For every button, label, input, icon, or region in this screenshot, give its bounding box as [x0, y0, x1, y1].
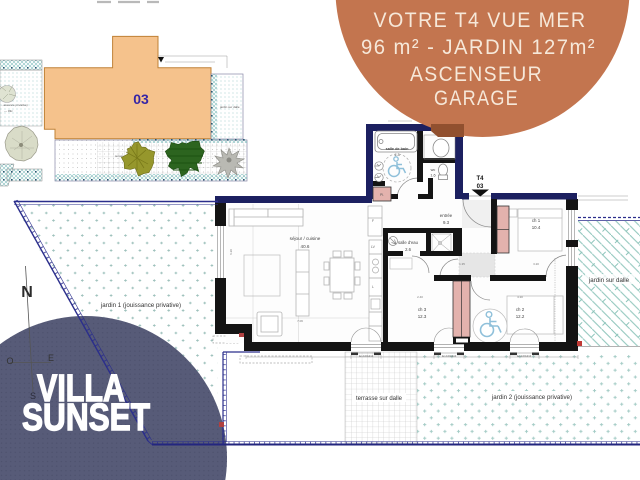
- svg-text:jardin sur dalle: jardin sur dalle: [219, 105, 240, 109]
- svg-text:fen 100x210: fen 100x210: [359, 354, 374, 358]
- svg-text:2.6: 2.6: [405, 247, 411, 252]
- svg-text:3.20: 3.20: [533, 262, 539, 266]
- svg-text:O: O: [6, 356, 13, 366]
- svg-text:12.2: 12.2: [516, 314, 525, 319]
- svg-text:...assance privative): ...assance privative): [1, 103, 28, 107]
- svg-text:40.6: 40.6: [301, 244, 310, 249]
- svg-text:SUNSET: SUNSET: [22, 397, 150, 439]
- svg-text:Pl.: Pl.: [380, 193, 384, 197]
- svg-text:ch 1: ch 1: [532, 218, 541, 223]
- svg-text:7.06: 7.06: [297, 319, 303, 323]
- svg-text:ASCENSEUR: ASCENSEUR: [410, 63, 543, 86]
- svg-text:ch 3: ch 3: [418, 307, 427, 312]
- svg-text:salle de bain: salle de bain: [386, 147, 409, 151]
- svg-text:1.6: 1.6: [430, 174, 435, 178]
- svg-text:N: N: [21, 284, 33, 301]
- svg-text:jardin 2 (jouissance privative: jardin 2 (jouissance privative): [491, 394, 572, 401]
- svg-text:jardin 1 (jouissance privative: jardin 1 (jouissance privative): [100, 302, 181, 309]
- svg-text:4.30: 4.30: [517, 295, 523, 299]
- svg-text:1.35: 1.35: [459, 262, 465, 266]
- svg-text:6.20: 6.20: [229, 249, 233, 255]
- svg-text:12.3: 12.3: [418, 314, 427, 319]
- svg-text:F: F: [372, 219, 374, 223]
- svg-text:9.3: 9.3: [443, 220, 450, 225]
- svg-text:wc: wc: [431, 168, 436, 172]
- svg-text:fen 100x210: fen 100x210: [517, 354, 532, 358]
- svg-text:ch 2: ch 2: [516, 307, 525, 312]
- svg-text:2.40: 2.40: [417, 295, 423, 299]
- svg-text:— 03c: — 03c: [4, 109, 13, 113]
- svg-text:jardin sur dalle: jardin sur dalle: [588, 277, 630, 284]
- svg-text:T4: T4: [476, 176, 484, 182]
- svg-text:terrasse sur dalle: terrasse sur dalle: [356, 396, 403, 402]
- svg-text:entrée: entrée: [440, 213, 453, 218]
- svg-text:L: L: [372, 285, 374, 289]
- svg-text:E: E: [48, 353, 54, 363]
- svg-text:salle d'eau: salle d'eau: [398, 240, 419, 245]
- svg-text:03: 03: [133, 91, 149, 107]
- svg-text:séjour / cuisine: séjour / cuisine: [290, 236, 321, 241]
- svg-text:03: 03: [477, 184, 484, 190]
- svg-text:96 m² - JARDIN 127m²: 96 m² - JARDIN 127m²: [361, 36, 596, 59]
- svg-text:VOTRE T4 VUE MER: VOTRE T4 VUE MER: [374, 9, 587, 32]
- svg-text:fen 100x210: fen 100x210: [442, 354, 457, 358]
- svg-text:10.4: 10.4: [532, 225, 541, 230]
- svg-text:GARAGE: GARAGE: [434, 87, 519, 110]
